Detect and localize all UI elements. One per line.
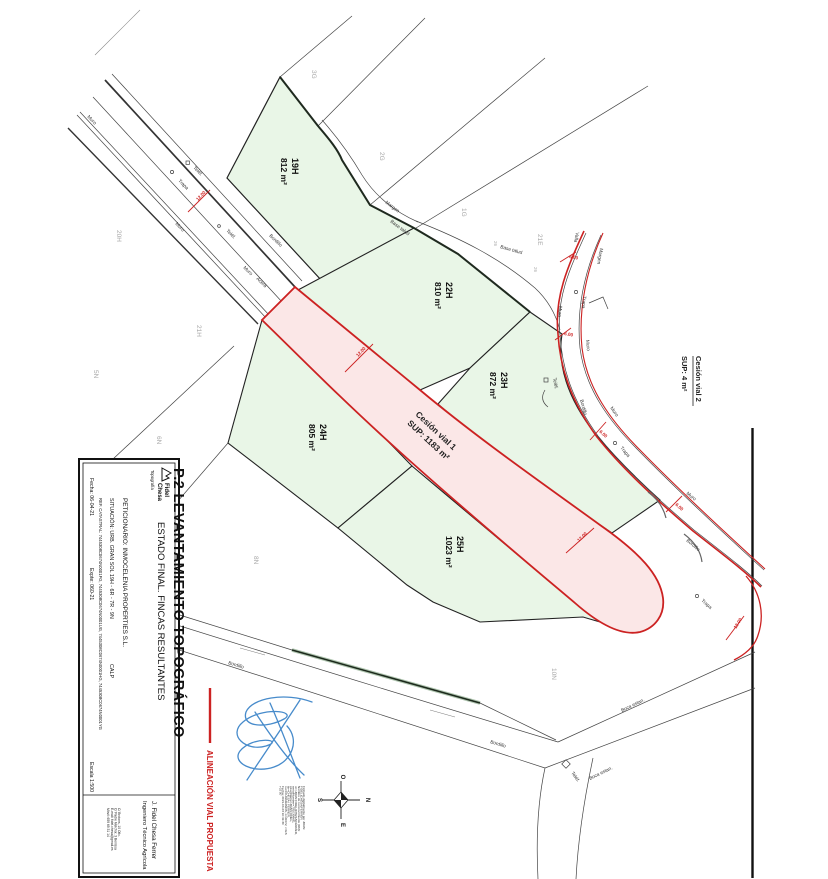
- map-label: Muro: [556, 306, 563, 318]
- stamp-line: +02'00': [279, 786, 283, 796]
- compass-rose: O N E S: [316, 775, 370, 827]
- parcel-id: 19H: [290, 158, 300, 175]
- road-bottom-right: [537, 652, 755, 879]
- point-number: 26: [533, 267, 538, 273]
- neighbour-label: 10N: [550, 668, 557, 680]
- logo-name2: Chesa: [156, 483, 162, 502]
- map-label: Muro: [608, 406, 619, 419]
- map-label: Base talud: [499, 244, 523, 256]
- map-label: Muro: [242, 265, 254, 277]
- logo-subtitle: Topografía: [150, 470, 155, 490]
- map-label: Bordillo: [685, 538, 701, 553]
- map-label: Bordillo: [489, 739, 506, 750]
- contact-line: Móvil: 659 69 31 14: [106, 808, 110, 837]
- map-label: Boca estan.: [620, 697, 645, 714]
- dim-label: 6.00: [598, 429, 608, 439]
- cession-sup: SUP: 4 m²: [680, 356, 689, 392]
- dim-label: 6.00: [674, 502, 684, 512]
- parcel-area: 805 m²: [307, 424, 317, 451]
- neighbour-label: 3G: [310, 70, 317, 79]
- dim-label: 6.00: [569, 254, 579, 261]
- parcel-area: 810 m²: [433, 282, 443, 309]
- neighbour-label: 5N: [92, 370, 99, 379]
- dim-label: 6.00: [564, 331, 574, 338]
- map-label: Teléf.: [569, 771, 580, 784]
- parcel-id: 23H: [499, 372, 509, 389]
- parcel-area: 1023 m²: [444, 536, 454, 568]
- compass-south: S: [316, 798, 322, 802]
- map-label: Muro: [584, 340, 591, 352]
- file-number: Expte: 060-21: [88, 568, 94, 600]
- engineer-title: Ingeniero Técnico Agrícola: [141, 801, 147, 870]
- map-label: Bordillo: [227, 660, 244, 671]
- sheet-title: P.2 LEVANTAMIENTO TOPOGRÁFICO: [170, 468, 187, 738]
- logo-name1: Fidel: [163, 483, 169, 497]
- compass-north: N: [364, 798, 370, 802]
- legend-label: ALINEACIÓN VIAL PROPUESTA: [205, 750, 214, 872]
- neighbour-label: 20H: [115, 230, 122, 242]
- map-label: Trapa: [618, 445, 631, 459]
- engineer-name: J. Fidel Chesa Ferrer: [150, 801, 157, 859]
- map-label: Acera: [255, 276, 268, 289]
- point-number: 26: [493, 241, 498, 247]
- parcel-id: 22H: [444, 282, 454, 299]
- parcel-id: 25H: [455, 536, 465, 553]
- map-label: Margen: [595, 248, 604, 265]
- compass-west: O: [339, 775, 345, 780]
- petitioner: PETICIONARIO: INMOCELENIA PROPERTIES S.L…: [121, 498, 128, 647]
- map-label: Teléf.: [225, 228, 237, 240]
- parcel-area: 872 m²: [488, 372, 498, 399]
- boundary-line: [95, 10, 140, 55]
- neighbour-label: 2G: [378, 152, 385, 161]
- survey-drawing: 12.00 12.00 6.00 6.00 6.00 6.00 12.00 12…: [0, 0, 828, 879]
- cadastral-ref: REF. CATASTRAL: 7445308C0674N0001FG, 744…: [98, 498, 103, 730]
- digital-signature-stamp: Firmado digitalmente por JOAN FIDEL|CHES…: [279, 786, 306, 835]
- neighbour-label: 1G: [460, 208, 467, 217]
- parcel-id: 24H: [318, 424, 328, 441]
- dim-label: 12.00: [195, 190, 207, 202]
- scale: Escala 1:500: [88, 762, 94, 792]
- date: Fecha: 06-04-21: [88, 478, 94, 516]
- map-label: Boca estan.: [588, 765, 613, 782]
- cession-2-label: Cesión vial 2 SUP: 4 m²: [680, 356, 703, 406]
- situation: SITUACIÓN: URB. GRAN SOL 19H - 6R - 7R -…: [108, 498, 115, 619]
- neighbour-label: 8N: [252, 556, 259, 565]
- handwritten-signature: [237, 697, 312, 780]
- sheet-subtitle: ESTADO FINAL. FINCAS RESULTANTES: [155, 522, 166, 700]
- map-label: Margen: [384, 200, 401, 215]
- parcel-area: 812 m²: [279, 158, 289, 185]
- map-label: Trapa: [700, 598, 713, 611]
- legend-alignment: ALINEACIÓN VIAL PROPUESTA: [205, 688, 214, 872]
- compass-east: E: [339, 823, 345, 827]
- neighbour-label: 21E: [536, 234, 543, 246]
- neighbour-label: 21H: [195, 325, 202, 337]
- cession-name: Cesión vial 2: [694, 356, 703, 402]
- title-block: Fidel Chesa Topografía P.2 LEVANTAMIENTO…: [79, 459, 187, 877]
- neighbour-label: 6N: [155, 436, 162, 445]
- situation-city: CALP: [108, 664, 114, 678]
- map-label: Trapa: [580, 296, 587, 309]
